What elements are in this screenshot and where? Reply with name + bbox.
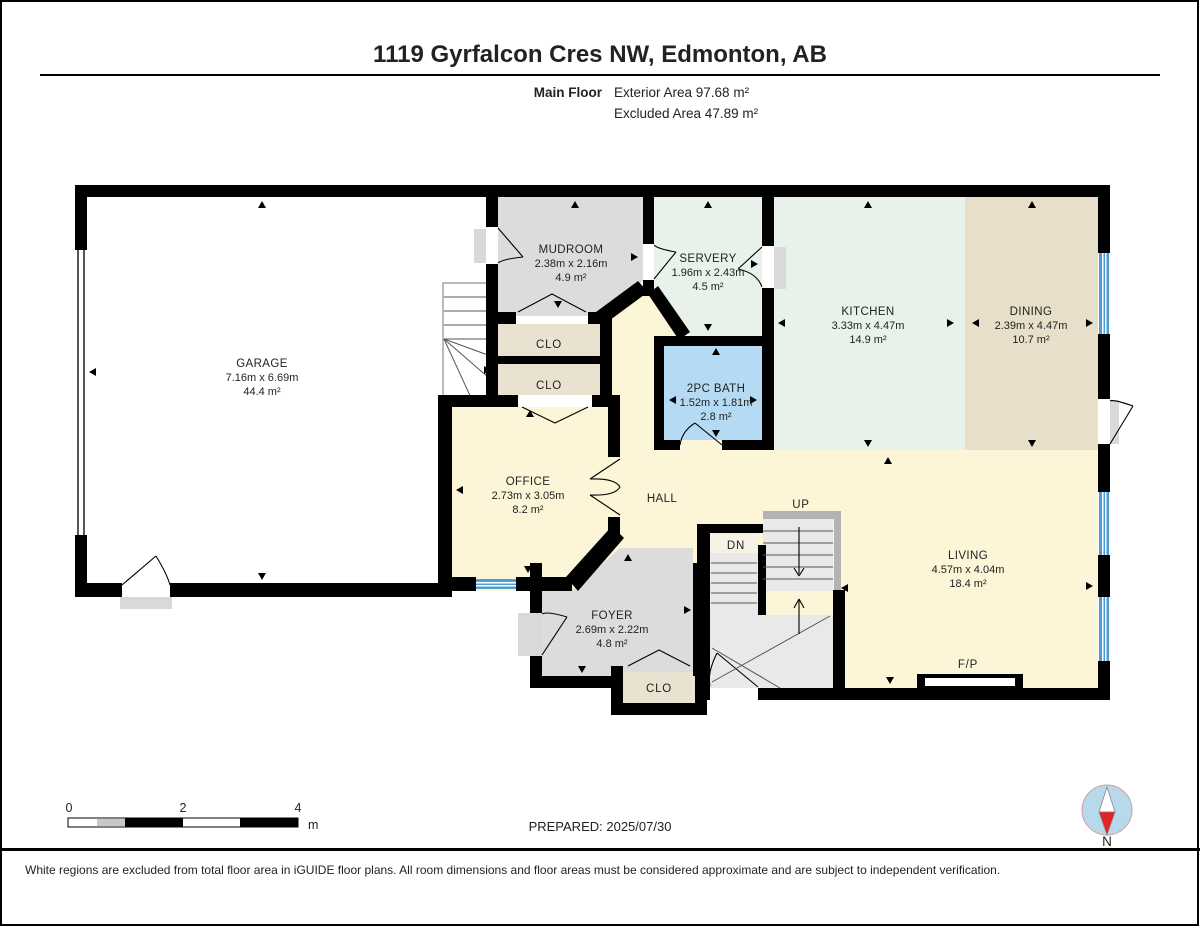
- header: 1119 Gyrfalcon Cres NW, Edmonton, AB Mai…: [40, 41, 1160, 121]
- excluded-area: Excluded Area 47.89 m²: [614, 106, 759, 121]
- room-area-dining: 10.7 m²: [1012, 334, 1050, 346]
- footer-divider: [0, 848, 1200, 851]
- page-title: 1119 Gyrfalcon Cres NW, Edmonton, AB: [373, 41, 827, 68]
- title-divider: [40, 74, 1160, 76]
- room-dims-mudroom: 2.38m x 2.16m: [535, 258, 608, 270]
- compass-label: N: [1102, 834, 1112, 849]
- room-label-garage: GARAGE: [236, 358, 288, 370]
- room-dims-foyer: 2.69m x 2.22m: [576, 624, 649, 636]
- closet3-label: CLO: [646, 683, 672, 695]
- garage-man-door: [122, 556, 170, 585]
- room-label-dining: DINING: [1010, 306, 1053, 318]
- floor-plan-sheet: 1119 Gyrfalcon Cres NW, Edmonton, AB Mai…: [0, 0, 1200, 927]
- fireplace-label: F/P: [958, 659, 978, 671]
- scale-tick-4: 4: [295, 801, 302, 815]
- room-area-servery: 4.5 m²: [692, 281, 724, 293]
- room-label-servery: SERVERY: [679, 253, 736, 265]
- room-dims-dining: 2.39m x 4.47m: [995, 320, 1068, 332]
- disclaimer: White regions are excluded from total fl…: [25, 863, 1000, 877]
- room-label-foyer: FOYER: [591, 610, 633, 622]
- room-dims-kitchen: 3.33m x 4.47m: [832, 320, 905, 332]
- room-area-mudroom: 4.9 m²: [555, 272, 587, 284]
- scale-tick-0: 0: [66, 801, 73, 815]
- compass-icon: N: [1082, 785, 1132, 849]
- room-area-bath: 2.8 m²: [700, 411, 732, 423]
- exterior-area: Exterior Area 97.68 m²: [614, 85, 750, 100]
- closet1-label: CLO: [536, 339, 562, 351]
- room-dims-office: 2.73m x 3.05m: [492, 490, 565, 502]
- room-dims-garage: 7.16m x 6.69m: [226, 372, 299, 384]
- room-area-kitchen: 14.9 m²: [849, 334, 887, 346]
- fireplace: [917, 674, 1023, 690]
- room-label-bath: 2PC BATH: [687, 383, 746, 395]
- room-area-garage: 44.4 m²: [243, 386, 281, 398]
- stairs-down-label: DN: [727, 540, 745, 552]
- floor-plan-canvas: 1119 Gyrfalcon Cres NW, Edmonton, AB Mai…: [0, 0, 1200, 927]
- scale-unit: m: [308, 818, 318, 832]
- closet2-label: CLO: [536, 380, 562, 392]
- room-area-foyer: 4.8 m²: [596, 638, 628, 650]
- room-label-hall: HALL: [647, 493, 678, 505]
- room-dims-bath: 1.52m x 1.81m: [680, 397, 753, 409]
- scale-bar: 0 2 4 m: [66, 801, 319, 832]
- room-label-living: LIVING: [948, 550, 988, 562]
- room-dims-living: 4.57m x 4.04m: [932, 564, 1005, 576]
- room-label-mudroom: MUDROOM: [539, 244, 604, 256]
- stairs-up-label: UP: [792, 499, 810, 511]
- room-dims-servery: 1.96m x 2.43m: [672, 267, 745, 279]
- floor-label: Main Floor: [534, 85, 603, 100]
- room-area-office: 8.2 m²: [512, 504, 544, 516]
- room-area-living: 18.4 m²: [949, 578, 987, 590]
- room-label-office: OFFICE: [506, 476, 551, 488]
- room-label-kitchen: KITCHEN: [841, 306, 894, 318]
- prepared-date: PREPARED: 2025/07/30: [529, 819, 672, 834]
- scale-tick-2: 2: [180, 801, 187, 815]
